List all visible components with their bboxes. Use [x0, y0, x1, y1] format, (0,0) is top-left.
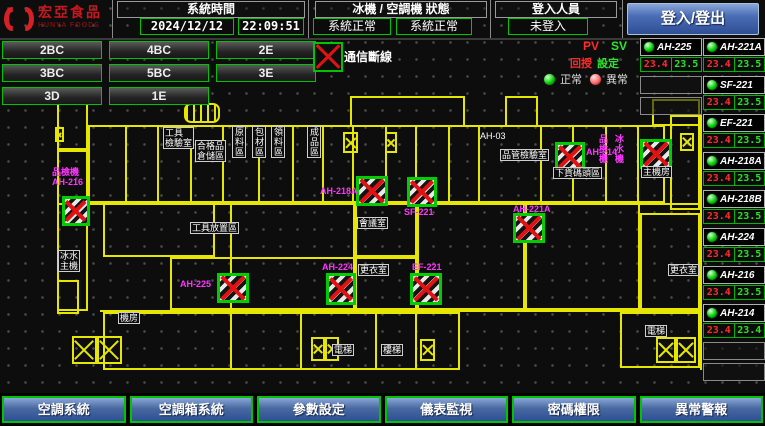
sv-value: 23.5	[735, 210, 765, 223]
empty-slot	[703, 342, 765, 360]
pv-value: 23.4	[704, 96, 735, 109]
unit-AH-218B: AH-218B23.423.5	[703, 190, 765, 224]
elevator-icon	[72, 336, 97, 364]
plan-label: 下貨碼頭區	[553, 167, 602, 179]
unit-name: EF-221	[720, 118, 753, 129]
status-led-icon	[706, 193, 718, 205]
ahu-status-value: 系統正常	[396, 18, 472, 35]
nav-button-空調系統[interactable]: 空調系統	[2, 396, 126, 423]
sv-value: 23.5	[672, 58, 702, 71]
plan-label: EF-221	[412, 262, 442, 272]
pv-value: 23.4	[704, 58, 735, 71]
unit-EF-221: EF-22123.423.5	[703, 114, 765, 148]
nav-button-儀表監視[interactable]: 儀表監視	[385, 396, 509, 423]
plan-label: 更衣室	[358, 264, 389, 276]
plan-wall	[300, 312, 302, 370]
plan-wall	[448, 125, 450, 203]
normal-legend-label: 正常	[560, 71, 582, 87]
plan-wall	[157, 125, 159, 203]
ahu-offline-marker[interactable]	[356, 176, 388, 206]
unit-values: 23.423.5	[703, 57, 765, 72]
login-user-label: 登入人員	[495, 1, 617, 18]
plan-label: 品檢機 AH-216	[52, 167, 83, 187]
plan-room	[350, 96, 465, 127]
unit-AH-216: AH-21623.423.5	[703, 266, 765, 300]
plan-label: 合格品 倉儲區	[195, 140, 226, 162]
system-time-value: 22:09:51	[238, 18, 304, 35]
unit-name: AH-218A	[720, 156, 762, 167]
unit-name: AH-214	[720, 308, 754, 319]
header-divider	[308, 0, 309, 38]
plan-wall	[125, 125, 127, 203]
sv-value: 23.5	[735, 134, 765, 147]
floor-button-row: 2BC4BC2E	[2, 41, 316, 59]
ahu-offline-marker[interactable]	[640, 139, 672, 169]
sv-header: SV	[611, 39, 627, 53]
unit-button-AH-218B[interactable]: AH-218B	[703, 190, 765, 208]
pv-value: 23.4	[704, 324, 735, 337]
unit-button-AH-221A[interactable]: AH-221A	[703, 38, 765, 56]
pv-value: 23.4	[704, 248, 735, 261]
sv-value: 23.5	[735, 286, 765, 299]
header-divider	[112, 0, 113, 38]
machine-status-label: 冰機 / 空調機 狀態	[315, 1, 487, 18]
unit-button-SF-221[interactable]: SF-221	[703, 76, 765, 94]
system-time-label: 系統時間	[117, 1, 305, 18]
plan-label: 工具放置區	[190, 222, 239, 234]
pv-value: 23.4	[704, 210, 735, 223]
status-led-icon	[706, 155, 718, 167]
unit-name: AH-221A	[720, 42, 762, 53]
header-divider	[622, 0, 623, 38]
floor-button-3BC[interactable]: 3BC	[2, 64, 102, 82]
plan-label: 電梯	[332, 344, 354, 356]
status-led-icon	[706, 41, 718, 53]
empty-slot	[703, 363, 765, 381]
plan-wall	[222, 125, 224, 203]
elevator-icon	[311, 337, 325, 361]
floor-button-row: 3D1E	[2, 87, 316, 105]
sv-value: 23.5	[735, 172, 765, 185]
unit-button-AH-218A[interactable]: AH-218A	[703, 152, 765, 170]
elevator-icon	[385, 132, 397, 153]
unit-values: 23.423.5	[703, 95, 765, 110]
plan-room	[57, 280, 79, 314]
sv-value: 23.5	[735, 58, 765, 71]
hunya-logo-icon	[4, 4, 34, 34]
plan-label: 品管檢驗室	[500, 149, 549, 161]
unit-AH-218A: AH-218A23.423.5	[703, 152, 765, 186]
status-led-icon	[706, 307, 718, 319]
plan-room	[670, 115, 700, 210]
plan-wall	[230, 312, 232, 370]
elevator-icon	[656, 337, 676, 363]
pv-header: PV	[583, 39, 599, 53]
floor-button-grid: 2BC4BC2E3BC5BC3E3D1E	[2, 41, 316, 110]
nav-button-空調箱系統[interactable]: 空調箱系統	[130, 396, 254, 423]
plan-wall	[415, 312, 417, 370]
login-logout-button[interactable]: 登入/登出	[627, 3, 759, 35]
pv-value: 23.4	[704, 172, 735, 185]
floor-button-1E[interactable]: 1E	[109, 87, 209, 105]
unit-AH-224: AH-22423.423.5	[703, 228, 765, 262]
abnormal-led-icon	[589, 73, 602, 86]
ahu-offline-marker[interactable]	[407, 177, 437, 207]
pv-value: 23.4	[704, 286, 735, 299]
plan-label: 主機房	[641, 166, 672, 178]
plan-wall	[100, 310, 700, 312]
normal-led-icon	[543, 73, 556, 86]
plan-label: AH-03	[480, 131, 506, 141]
elevator-icon	[97, 336, 122, 364]
plan-label: AH-224	[322, 262, 353, 272]
unit-column-left: AH-22523.423.5	[640, 38, 702, 118]
elevator-icon	[55, 127, 64, 142]
nav-button-參數設定[interactable]: 參數設定	[257, 396, 381, 423]
logo-name: 宏亞食品	[38, 6, 102, 19]
pv-name-label: 回授	[570, 55, 592, 71]
unit-button-EF-221[interactable]: EF-221	[703, 114, 765, 132]
plan-wall	[700, 115, 702, 370]
elevator-icon	[420, 339, 435, 361]
logo: 宏亞食品 HUNYA FOODS	[4, 2, 112, 36]
header-divider	[490, 0, 491, 38]
unit-AH-225: AH-22523.423.5	[640, 38, 702, 72]
status-led-icon	[706, 269, 718, 281]
plan-label: 原料區	[232, 126, 246, 158]
unit-values: 23.423.5	[703, 133, 765, 148]
ahu-offline-marker[interactable]	[217, 273, 249, 303]
floor-button-3D[interactable]: 3D	[2, 87, 102, 105]
plan-label: 會議室	[357, 217, 388, 229]
comm-fail-icon	[313, 42, 343, 72]
nav-button-密碼權限[interactable]: 密碼權限	[512, 396, 636, 423]
unit-name: AH-224	[720, 232, 754, 243]
sv-value: 23.5	[735, 248, 765, 261]
elevator-icon	[676, 337, 696, 363]
comm-fail-label: 通信斷線	[344, 48, 392, 65]
unit-values: 23.423.4	[703, 323, 765, 338]
unit-name: SF-221	[720, 80, 753, 91]
plan-room	[640, 213, 700, 310]
pv-value: 23.4	[704, 134, 735, 147]
unit-button-AH-214[interactable]: AH-214	[703, 304, 765, 322]
unit-values: 23.423.5	[703, 247, 765, 262]
unit-AH-221A: AH-221A23.423.5	[703, 38, 765, 72]
floor-button-5BC[interactable]: 5BC	[109, 64, 209, 82]
floor-button-2BC[interactable]: 2BC	[2, 41, 102, 59]
plan-label: AH-218A	[320, 186, 358, 196]
floor-button-3E[interactable]: 3E	[216, 64, 316, 82]
plan-label: 品檢機	[598, 134, 608, 164]
unit-button-AH-225[interactable]: AH-225	[640, 38, 702, 56]
status-led-icon	[706, 117, 718, 129]
plan-label: 領料區	[271, 126, 285, 158]
ahu-offline-marker[interactable]	[410, 273, 442, 305]
elevator-icon	[343, 132, 358, 153]
plan-label: 更衣室	[668, 264, 699, 276]
plan-room	[103, 312, 460, 370]
plan-label: AH-225	[180, 279, 211, 289]
status-led-icon	[706, 231, 718, 243]
floor-button-4BC[interactable]: 4BC	[109, 41, 209, 59]
empty-slot	[640, 76, 702, 94]
unit-name: AH-218B	[720, 194, 762, 205]
plan-label: 機房	[118, 312, 140, 324]
unit-values: 23.423.5	[703, 285, 765, 300]
sv-value: 23.5	[735, 96, 765, 109]
unit-name: AH-225	[657, 42, 691, 53]
plan-wall	[375, 312, 377, 370]
unit-name: AH-216	[720, 270, 754, 281]
plan-label: SF-221	[404, 207, 434, 217]
plan-label: 冰水機	[614, 134, 624, 164]
login-user-value: 未登入	[508, 18, 588, 35]
unit-AH-214: AH-21423.423.4	[703, 304, 765, 338]
unit-button-AH-224[interactable]: AH-224	[703, 228, 765, 246]
status-led-icon	[643, 41, 655, 53]
ahu-offline-marker[interactable]	[326, 273, 356, 305]
ahu-offline-marker[interactable]	[513, 213, 545, 243]
floor-button-2E[interactable]: 2E	[216, 41, 316, 59]
plan-wall	[637, 125, 639, 203]
plan-label: 冰水 主機	[58, 250, 80, 272]
system-date-value: 2024/12/12	[140, 18, 234, 35]
unit-SF-221: SF-22123.423.5	[703, 76, 765, 110]
unit-values: 23.423.5	[703, 171, 765, 186]
abnormal-legend-label: 異常	[606, 71, 628, 87]
plan-room	[505, 96, 538, 127]
sv-value: 23.4	[735, 324, 765, 337]
unit-button-AH-216[interactable]: AH-216	[703, 266, 765, 284]
plan-label: 包材區	[252, 126, 266, 158]
unit-values: 23.423.5	[640, 57, 702, 72]
elevator-icon	[680, 133, 694, 151]
pv-value: 23.4	[641, 58, 672, 71]
plan-wall	[540, 125, 542, 203]
status-led-icon	[706, 79, 718, 91]
unit-column-right: AH-221A23.423.5SF-22123.423.5EF-22123.42…	[703, 38, 765, 384]
nav-button-異常警報[interactable]: 異常警報	[640, 396, 764, 423]
floor-button-row: 3BC5BC3E	[2, 64, 316, 82]
plan-label: AH-221A	[513, 204, 551, 214]
bottom-nav-bar: 空調系統空調箱系統參數設定儀表監視密碼權限異常警報	[0, 393, 765, 426]
unit-values: 23.423.5	[703, 209, 765, 224]
ahu-offline-marker[interactable]	[62, 196, 90, 226]
plan-label: 成品區	[307, 126, 321, 158]
sv-name-label: 設定	[597, 55, 619, 71]
chiller-status-value: 系統正常	[313, 18, 391, 35]
plan-label: 電梯	[645, 325, 667, 337]
empty-slot	[640, 97, 702, 115]
hmi-screen: 宏亞食品 HUNYA FOODS 系統時間 2024/12/12 22:09:5…	[0, 0, 765, 426]
plan-label: 樓梯	[381, 344, 403, 356]
plan-label: 工具 檢驗室	[163, 127, 194, 149]
logo-subtitle: HUNYA FOODS	[38, 19, 102, 32]
plan-wall	[292, 125, 294, 203]
